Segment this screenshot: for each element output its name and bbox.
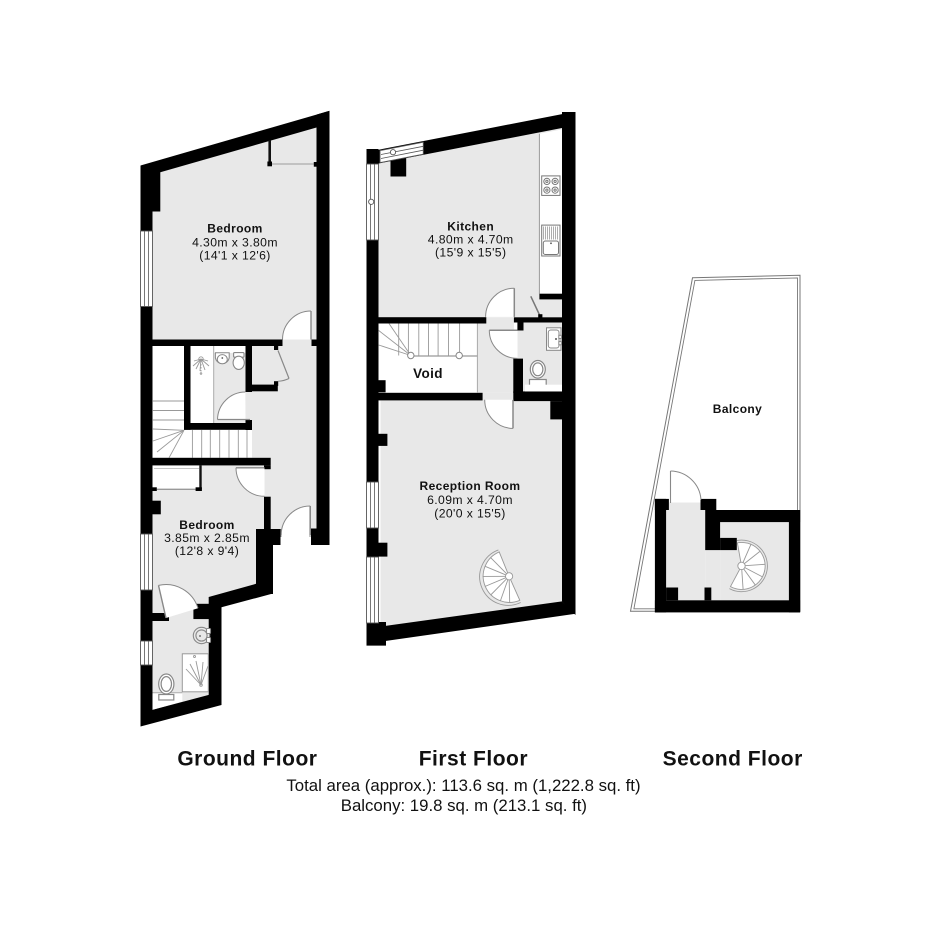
svg-text:6.09m x 4.70m: 6.09m x 4.70m (427, 493, 513, 507)
svg-text:Kitchen: Kitchen (447, 219, 494, 233)
svg-text:(20'0 x 15'5): (20'0 x 15'5) (434, 506, 506, 520)
svg-text:Second Floor: Second Floor (663, 748, 803, 771)
svg-text:First Floor: First Floor (419, 748, 528, 771)
svg-text:Total area (approx.): 113.6 sq: Total area (approx.): 113.6 sq. m (1,222… (286, 776, 640, 795)
svg-text:(12'8 x 9'4): (12'8 x 9'4) (175, 544, 239, 558)
svg-text:Void: Void (413, 366, 443, 381)
svg-text:4.80m x 4.70m: 4.80m x 4.70m (428, 232, 514, 246)
svg-text:(15'9 x 15'5): (15'9 x 15'5) (435, 246, 507, 260)
svg-text:Reception Room: Reception Room (420, 479, 521, 493)
svg-text:(14'1 x 12'6): (14'1 x 12'6) (199, 249, 271, 263)
svg-text:Balcony: 19.8 sq. m (213.1 sq.: Balcony: 19.8 sq. m (213.1 sq. ft) (341, 796, 587, 815)
svg-text:Balcony: Balcony (713, 402, 762, 416)
svg-text:3.85m x 2.85m: 3.85m x 2.85m (164, 531, 250, 545)
svg-text:4.30m x 3.80m: 4.30m x 3.80m (192, 235, 278, 249)
svg-text:Ground Floor: Ground Floor (177, 748, 317, 771)
svg-text:Bedroom: Bedroom (207, 221, 262, 235)
